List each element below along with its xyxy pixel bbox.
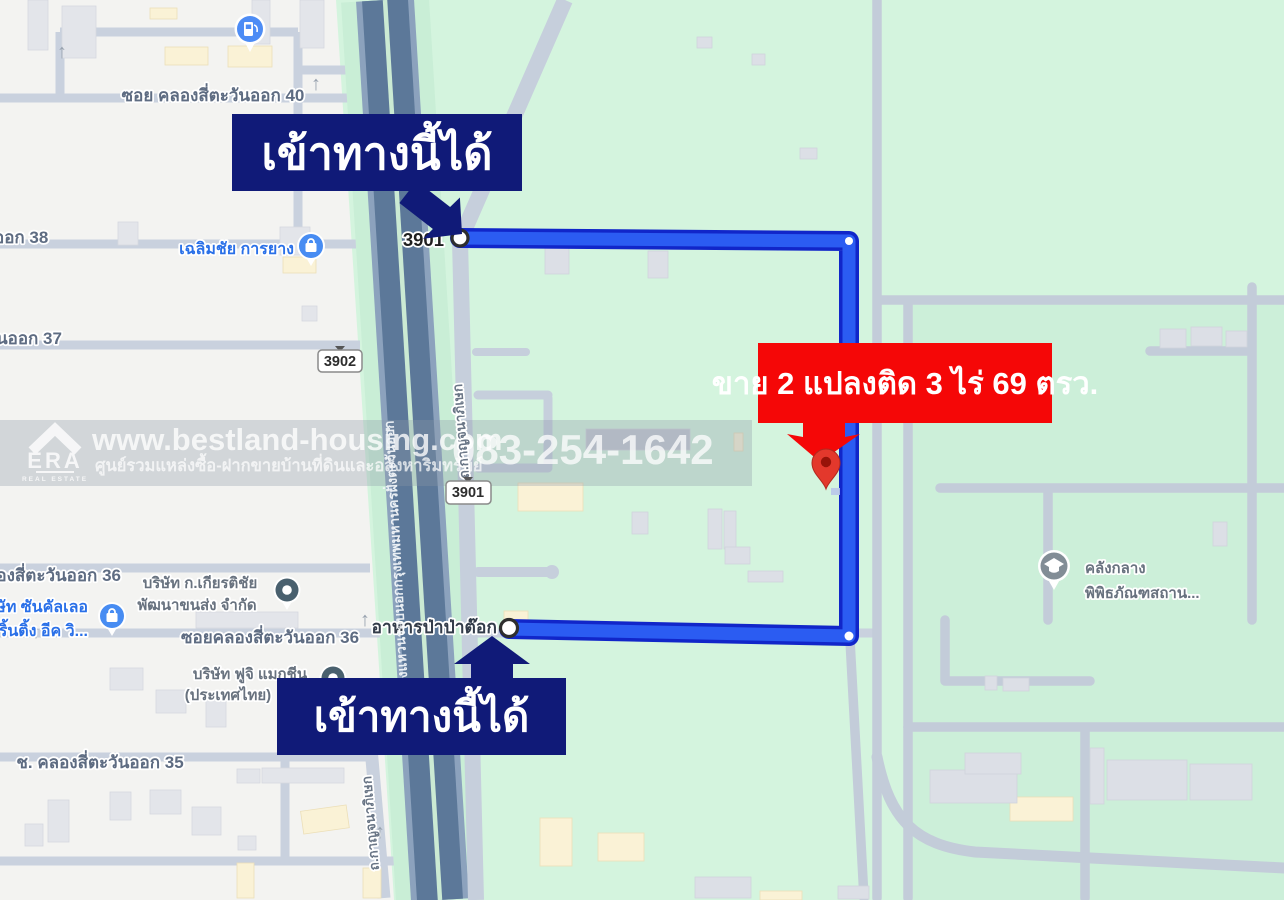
badge-3901: 3901 [446, 477, 491, 504]
badge-3902: 3902 [318, 346, 362, 372]
svg-text:↑: ↑ [311, 73, 321, 95]
label-museum-2: พิพิธภัณฑสถาน... [1085, 584, 1200, 602]
label-museum-1: คลังกลาง [1085, 560, 1146, 577]
callout-entry-bottom: เข้าทางนี้ได้ [277, 678, 566, 755]
callout-entry-top: เข้าทางนี้ได้ [232, 114, 522, 191]
watermark-site: www.bestland-housing.com [91, 422, 502, 457]
route-end-marker [501, 620, 518, 637]
route-corner-dot-top [845, 237, 853, 245]
label-soi-38: ออก 38 [0, 228, 48, 247]
label-fuji-2: (ประเทศไทย) [185, 685, 271, 704]
watermark: ERA REAL ESTATE www.bestland-housing.com… [0, 420, 752, 486]
label-transport-co-1: บริษัท ก.เกียรติชัย [143, 574, 258, 592]
label-restaurant: อาหารป่าป่าต๊อก [372, 617, 497, 637]
label-tire-shop: เฉลิมชัย การยาง [179, 240, 294, 258]
label-soi-36-upper: ลองสี่ตะวันออก 36 [0, 563, 121, 585]
era-logo-subtext: REAL ESTATE [22, 476, 88, 483]
route-corner-dot-bottom [845, 632, 854, 641]
watermark-phone: 083-254-1642 [452, 426, 714, 473]
svg-text:3902: 3902 [324, 354, 356, 370]
label-soi-40: ซอย คลองสี่ตะวันออก 40 [122, 83, 305, 105]
watermark-tagline: ศูนย์รวมแหล่งซื้อ-ฝากขายบ้านที่ดินและอสั… [95, 453, 483, 477]
svg-text:↑: ↑ [375, 821, 385, 843]
callout-entry-top-text: เข้าทางนี้ได้ [262, 117, 493, 189]
label-soi-35: ช. คลองสี่ตะวันออก 35 [16, 750, 183, 772]
era-logo-text: ERA [27, 448, 82, 473]
svg-text:3901: 3901 [452, 485, 484, 501]
callout-sale-text: ขาย 2 แปลงติด 3 ไร่ 69 ตรว. [712, 358, 1099, 408]
map-canvas[interactable]: ERA REAL ESTATE www.bestland-housing.com… [0, 0, 1284, 900]
callout-entry-bottom-text: เข้าทางนี้ได้ [314, 684, 530, 750]
label-transport-co-2: พัฒนาขนส่ง จำกัด [137, 597, 256, 614]
svg-text:↑: ↑ [57, 41, 67, 63]
svg-text:↑: ↑ [360, 609, 370, 631]
callout-sale: ขาย 2 แปลงติด 3 ไร่ 69 ตรว. [758, 343, 1052, 423]
map-screenshot: ERA REAL ESTATE www.bestland-housing.com… [0, 0, 1284, 900]
label-print-shop-1: ษัท ซันคัลเลอ [0, 598, 88, 616]
label-soi-36: ซอยคลองสี่ตะวันออก 36 [181, 625, 359, 647]
label-soi-37: นออก 37 [0, 329, 62, 348]
